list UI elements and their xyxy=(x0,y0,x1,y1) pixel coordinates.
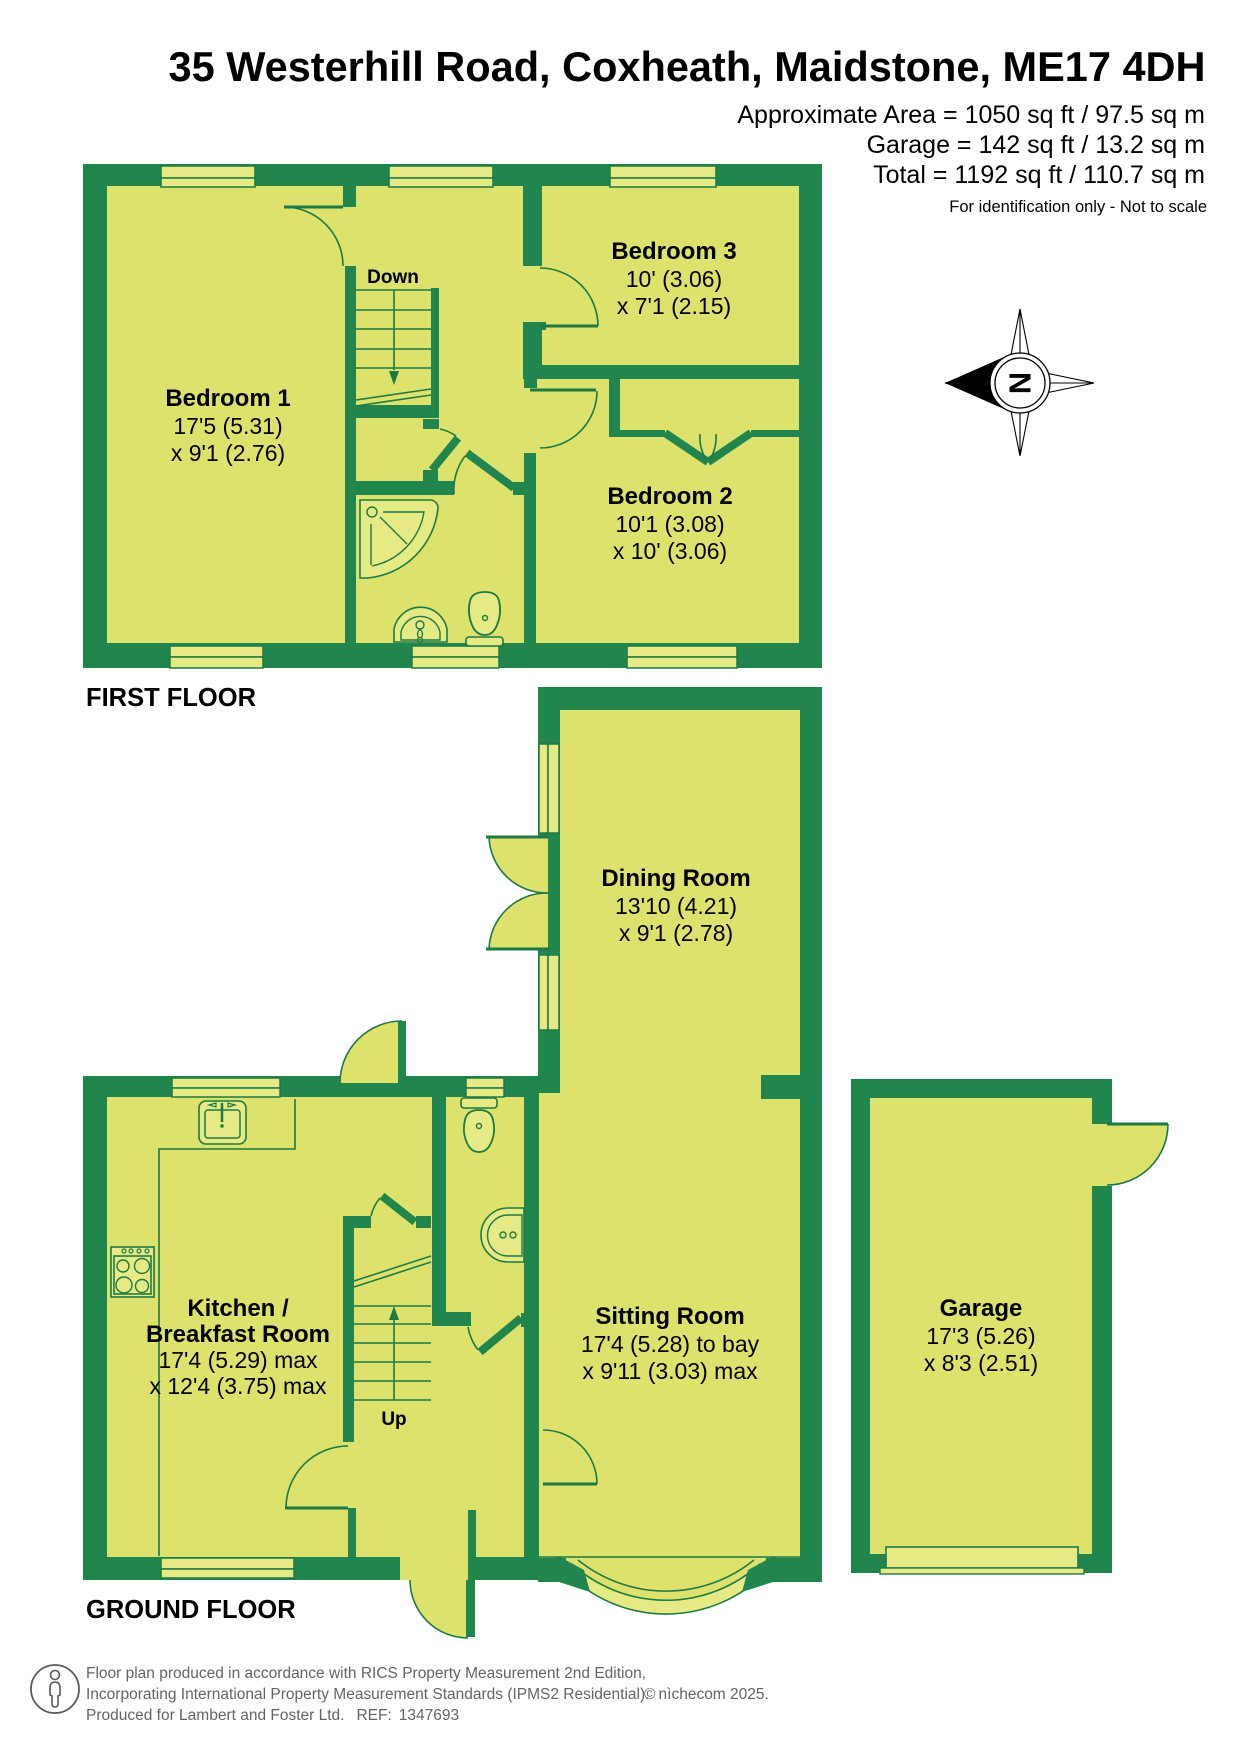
svg-text:x 9'11 (3.03) max: x 9'11 (3.03) max xyxy=(582,1358,758,1384)
svg-text:17'4 (5.28) to bay: 17'4 (5.28) to bay xyxy=(581,1331,760,1357)
svg-text:Dining Room: Dining Room xyxy=(601,865,750,892)
svg-text:GROUND FLOOR: GROUND FLOOR xyxy=(86,1596,296,1624)
svg-text:x 9'1 (2.76): x 9'1 (2.76) xyxy=(171,440,285,466)
svg-text:For identification only - Not: For identification only - Not to scale xyxy=(949,198,1207,216)
svg-text:x 7'1 (2.15): x 7'1 (2.15) xyxy=(617,293,731,319)
svg-text:Bedroom 1: Bedroom 1 xyxy=(165,385,290,412)
svg-text:13'10 (4.21): 13'10 (4.21) xyxy=(615,893,737,919)
svg-text:x 9'1 (2.78): x 9'1 (2.78) xyxy=(619,920,733,946)
svg-text:FIRST FLOOR: FIRST FLOOR xyxy=(86,684,256,712)
svg-text:Breakfast Room: Breakfast Room xyxy=(146,1321,330,1348)
svg-text:Bedroom 2: Bedroom 2 xyxy=(607,483,732,510)
svg-text:Garage: Garage xyxy=(940,1295,1023,1322)
svg-text:Produced for Lambert and Foste: Produced for Lambert and Foster Ltd.REF:… xyxy=(86,1707,459,1724)
svg-text:35 Westerhill Road, Coxheath,: 35 Westerhill Road, Coxheath, Maidstone,… xyxy=(169,43,1206,90)
svg-text:17'5 (5.31): 17'5 (5.31) xyxy=(173,413,282,439)
svg-text:Kitchen /: Kitchen / xyxy=(187,1295,289,1322)
svg-text:Bedroom 3: Bedroom 3 xyxy=(611,238,736,265)
svg-text:17'3 (5.26): 17'3 (5.26) xyxy=(926,1323,1035,1349)
svg-text:10'1 (3.08): 10'1 (3.08) xyxy=(615,511,724,537)
svg-text:N: N xyxy=(1003,372,1038,394)
svg-text:Incorporating International Pr: Incorporating International Property Mea… xyxy=(86,1686,649,1703)
svg-text:x 8'3 (2.51): x 8'3 (2.51) xyxy=(924,1350,1038,1376)
svg-text:Approximate Area = 1050 sq ft: Approximate Area = 1050 sq ft / 97.5 sq … xyxy=(737,101,1205,129)
svg-text:10' (3.06): 10' (3.06) xyxy=(626,266,722,292)
svg-text:Down: Down xyxy=(367,267,419,288)
svg-text:17'4 (5.29) max: 17'4 (5.29) max xyxy=(158,1347,318,1373)
svg-text:Sitting Room: Sitting Room xyxy=(595,1303,744,1330)
svg-text:x 10' (3.06): x 10' (3.06) xyxy=(613,538,727,564)
svg-text:Up: Up xyxy=(381,1409,406,1430)
svg-text:© nìchecom 2025.: © nìchecom 2025. xyxy=(644,1686,769,1703)
svg-text:Total = 1192 sq ft / 110.7 sq: Total = 1192 sq ft / 110.7 sq m xyxy=(873,161,1205,189)
svg-text:Garage = 142 sq ft / 13.2 sq m: Garage = 142 sq ft / 13.2 sq m xyxy=(867,131,1205,159)
svg-text:Floor plan produced in accorda: Floor plan produced in accordance with R… xyxy=(86,1665,646,1682)
svg-text:x 12'4 (3.75) max: x 12'4 (3.75) max xyxy=(150,1373,327,1399)
